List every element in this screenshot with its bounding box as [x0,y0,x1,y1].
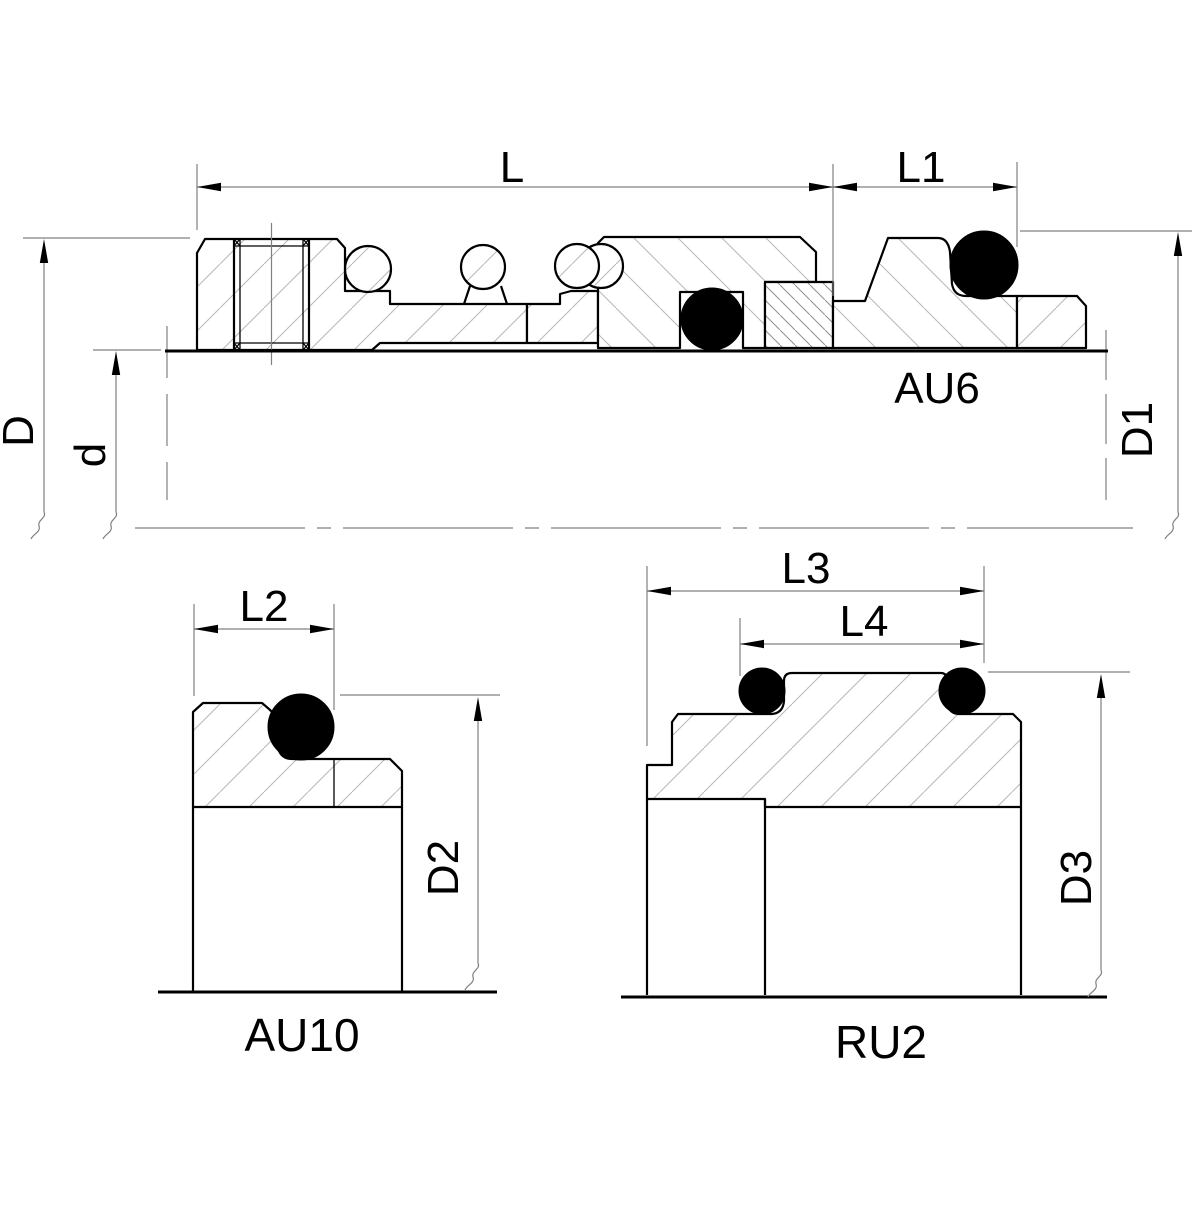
dim-label-L3: L3 [782,544,831,593]
dim-label-D: D [0,415,43,447]
view-label-ru2: RU2 [835,1016,927,1068]
dim-label-D3: D3 [1052,850,1101,906]
o-ring-outline-2 [461,245,505,289]
ru2-o-ring-left [739,668,785,714]
dim-label-D2: D2 [419,840,468,896]
dim-label-D1: D1 [1113,402,1162,458]
o-ring-outline-1 [345,246,391,292]
o-ring-solid-2 [950,231,1018,299]
au10-detail-view: L2 D2 AU10 [158,582,500,1061]
dimension-L4: L4 [740,597,984,676]
drawing-page: L L1 D d [0,0,1200,1200]
assembly-section-view: L L1 D d [0,143,1192,539]
dimension-L2: L2 [194,582,334,710]
dim-label-L1: L1 [897,143,946,192]
o-ring-solid-1 [681,288,743,350]
dim-label-d: d [66,443,115,467]
ru2-o-ring-right [939,668,985,714]
dimension-D2: D2 [340,695,500,990]
seal-body-mid [527,291,598,343]
dim-label-L: L [500,143,524,192]
view-label-au6: AU6 [894,364,980,413]
dimension-d: d [66,350,161,539]
au10-o-ring [268,694,334,760]
o-ring-outline-3 [555,244,599,288]
view-label-au10: AU10 [244,1009,359,1061]
dim-label-L2: L2 [240,582,289,631]
dim-label-L4: L4 [840,597,889,646]
end-ring [1017,296,1086,348]
au10-housing [193,807,402,991]
technical-drawing: L L1 D d [0,0,1200,1200]
backup-ring [765,282,833,348]
ru2-detail-view: L3 L4 D3 RU2 [621,544,1130,1068]
ru2-housing [647,799,1021,995]
dimension-D: D [0,238,190,539]
